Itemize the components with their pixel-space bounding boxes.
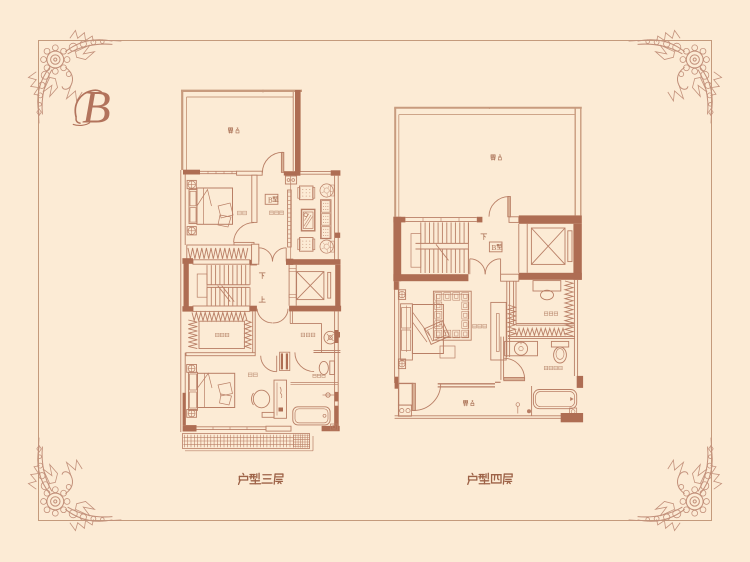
svg-text:B: B [492, 244, 497, 252]
svg-text:B: B [268, 196, 273, 204]
svg-text:B: B [82, 82, 111, 134]
